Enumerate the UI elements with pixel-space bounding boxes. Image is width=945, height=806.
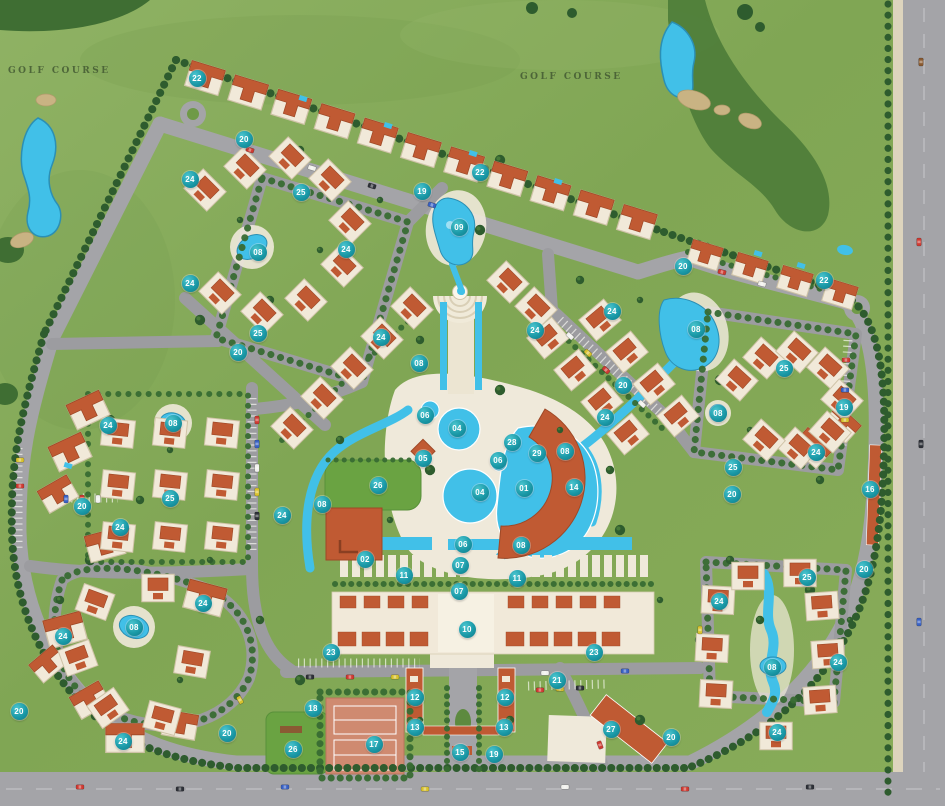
unit-marker-11: 11 [396, 567, 413, 584]
unit-marker-20: 20 [724, 486, 741, 503]
unit-marker-26: 26 [370, 477, 387, 494]
unit-marker-20: 20 [675, 258, 692, 275]
unit-marker-14: 14 [566, 479, 583, 496]
unit-marker-25: 25 [250, 325, 267, 342]
unit-marker-15: 15 [452, 744, 469, 761]
unit-marker-25: 25 [725, 459, 742, 476]
unit-marker-07: 07 [451, 583, 468, 600]
golf-course-label: GOLF COURSE [8, 66, 111, 76]
unit-marker-28: 28 [504, 434, 521, 451]
unit-marker-24: 24 [373, 329, 390, 346]
unit-marker-24: 24 [597, 409, 614, 426]
unit-marker-26: 26 [285, 741, 302, 758]
unit-marker-19: 19 [414, 183, 431, 200]
unit-marker-13: 13 [407, 719, 424, 736]
unit-marker-09: 09 [451, 219, 468, 236]
unit-marker-08: 08 [165, 415, 182, 432]
unit-marker-08: 08 [557, 443, 574, 460]
unit-marker-19: 19 [836, 399, 853, 416]
unit-marker-24: 24 [112, 519, 129, 536]
unit-marker-05: 05 [415, 450, 432, 467]
unit-marker-24: 24 [195, 595, 212, 612]
site-plan-graphic [0, 0, 945, 806]
unit-marker-25: 25 [776, 360, 793, 377]
unit-marker-20: 20 [615, 377, 632, 394]
unit-marker-29: 29 [529, 445, 546, 462]
unit-marker-23: 23 [323, 644, 340, 661]
unit-marker-17: 17 [366, 736, 383, 753]
unit-marker-06: 06 [490, 452, 507, 469]
unit-marker-24: 24 [274, 507, 291, 524]
unit-marker-08: 08 [764, 659, 781, 676]
unit-marker-06: 06 [455, 536, 472, 553]
unit-marker-23: 23 [586, 644, 603, 661]
unit-marker-20: 20 [236, 131, 253, 148]
unit-marker-13: 13 [496, 719, 513, 736]
unit-marker-10: 10 [459, 621, 476, 638]
unit-marker-24: 24 [769, 724, 786, 741]
unit-marker-20: 20 [219, 725, 236, 742]
unit-marker-12: 12 [407, 689, 424, 706]
unit-marker-20: 20 [11, 703, 28, 720]
unit-marker-20: 20 [856, 561, 873, 578]
unit-marker-24: 24 [830, 654, 847, 671]
unit-marker-19: 19 [486, 746, 503, 763]
unit-marker-11: 11 [509, 570, 526, 587]
unit-marker-20: 20 [230, 344, 247, 361]
unit-marker-22: 22 [472, 164, 489, 181]
unit-marker-04: 04 [472, 484, 489, 501]
unit-marker-24: 24 [808, 444, 825, 461]
unit-marker-08: 08 [688, 321, 705, 338]
unit-marker-21: 21 [549, 672, 566, 689]
unit-marker-24: 24 [527, 322, 544, 339]
unit-marker-27: 27 [603, 721, 620, 738]
unit-marker-02: 02 [357, 551, 374, 568]
unit-marker-25: 25 [799, 569, 816, 586]
unit-marker-08: 08 [411, 355, 428, 372]
unit-marker-08: 08 [250, 244, 267, 261]
unit-marker-08: 08 [314, 496, 331, 513]
unit-marker-22: 22 [816, 272, 833, 289]
unit-marker-18: 18 [305, 700, 322, 717]
unit-marker-24: 24 [182, 275, 199, 292]
unit-marker-04: 04 [449, 420, 466, 437]
unit-marker-07: 07 [452, 557, 469, 574]
unit-marker-20: 20 [74, 498, 91, 515]
unit-marker-24: 24 [182, 171, 199, 188]
unit-marker-25: 25 [293, 184, 310, 201]
golf-course-label: GOLF COURSE [520, 72, 623, 82]
site-plan: GOLF COURSEGOLF COURSE 22202425221909082… [0, 0, 945, 806]
unit-marker-22: 22 [189, 70, 206, 87]
unit-marker-08: 08 [126, 619, 143, 636]
unit-marker-24: 24 [55, 628, 72, 645]
unit-marker-08: 08 [710, 405, 727, 422]
unit-marker-01: 01 [516, 480, 533, 497]
unit-marker-24: 24 [711, 593, 728, 610]
unit-marker-08: 08 [513, 537, 530, 554]
unit-marker-20: 20 [663, 729, 680, 746]
unit-marker-16: 16 [862, 481, 879, 498]
unit-marker-24: 24 [115, 733, 132, 750]
unit-marker-25: 25 [162, 490, 179, 507]
unit-marker-24: 24 [338, 241, 355, 258]
unit-marker-06: 06 [417, 407, 434, 424]
unit-marker-24: 24 [604, 303, 621, 320]
unit-marker-24: 24 [100, 417, 117, 434]
unit-marker-12: 12 [497, 689, 514, 706]
